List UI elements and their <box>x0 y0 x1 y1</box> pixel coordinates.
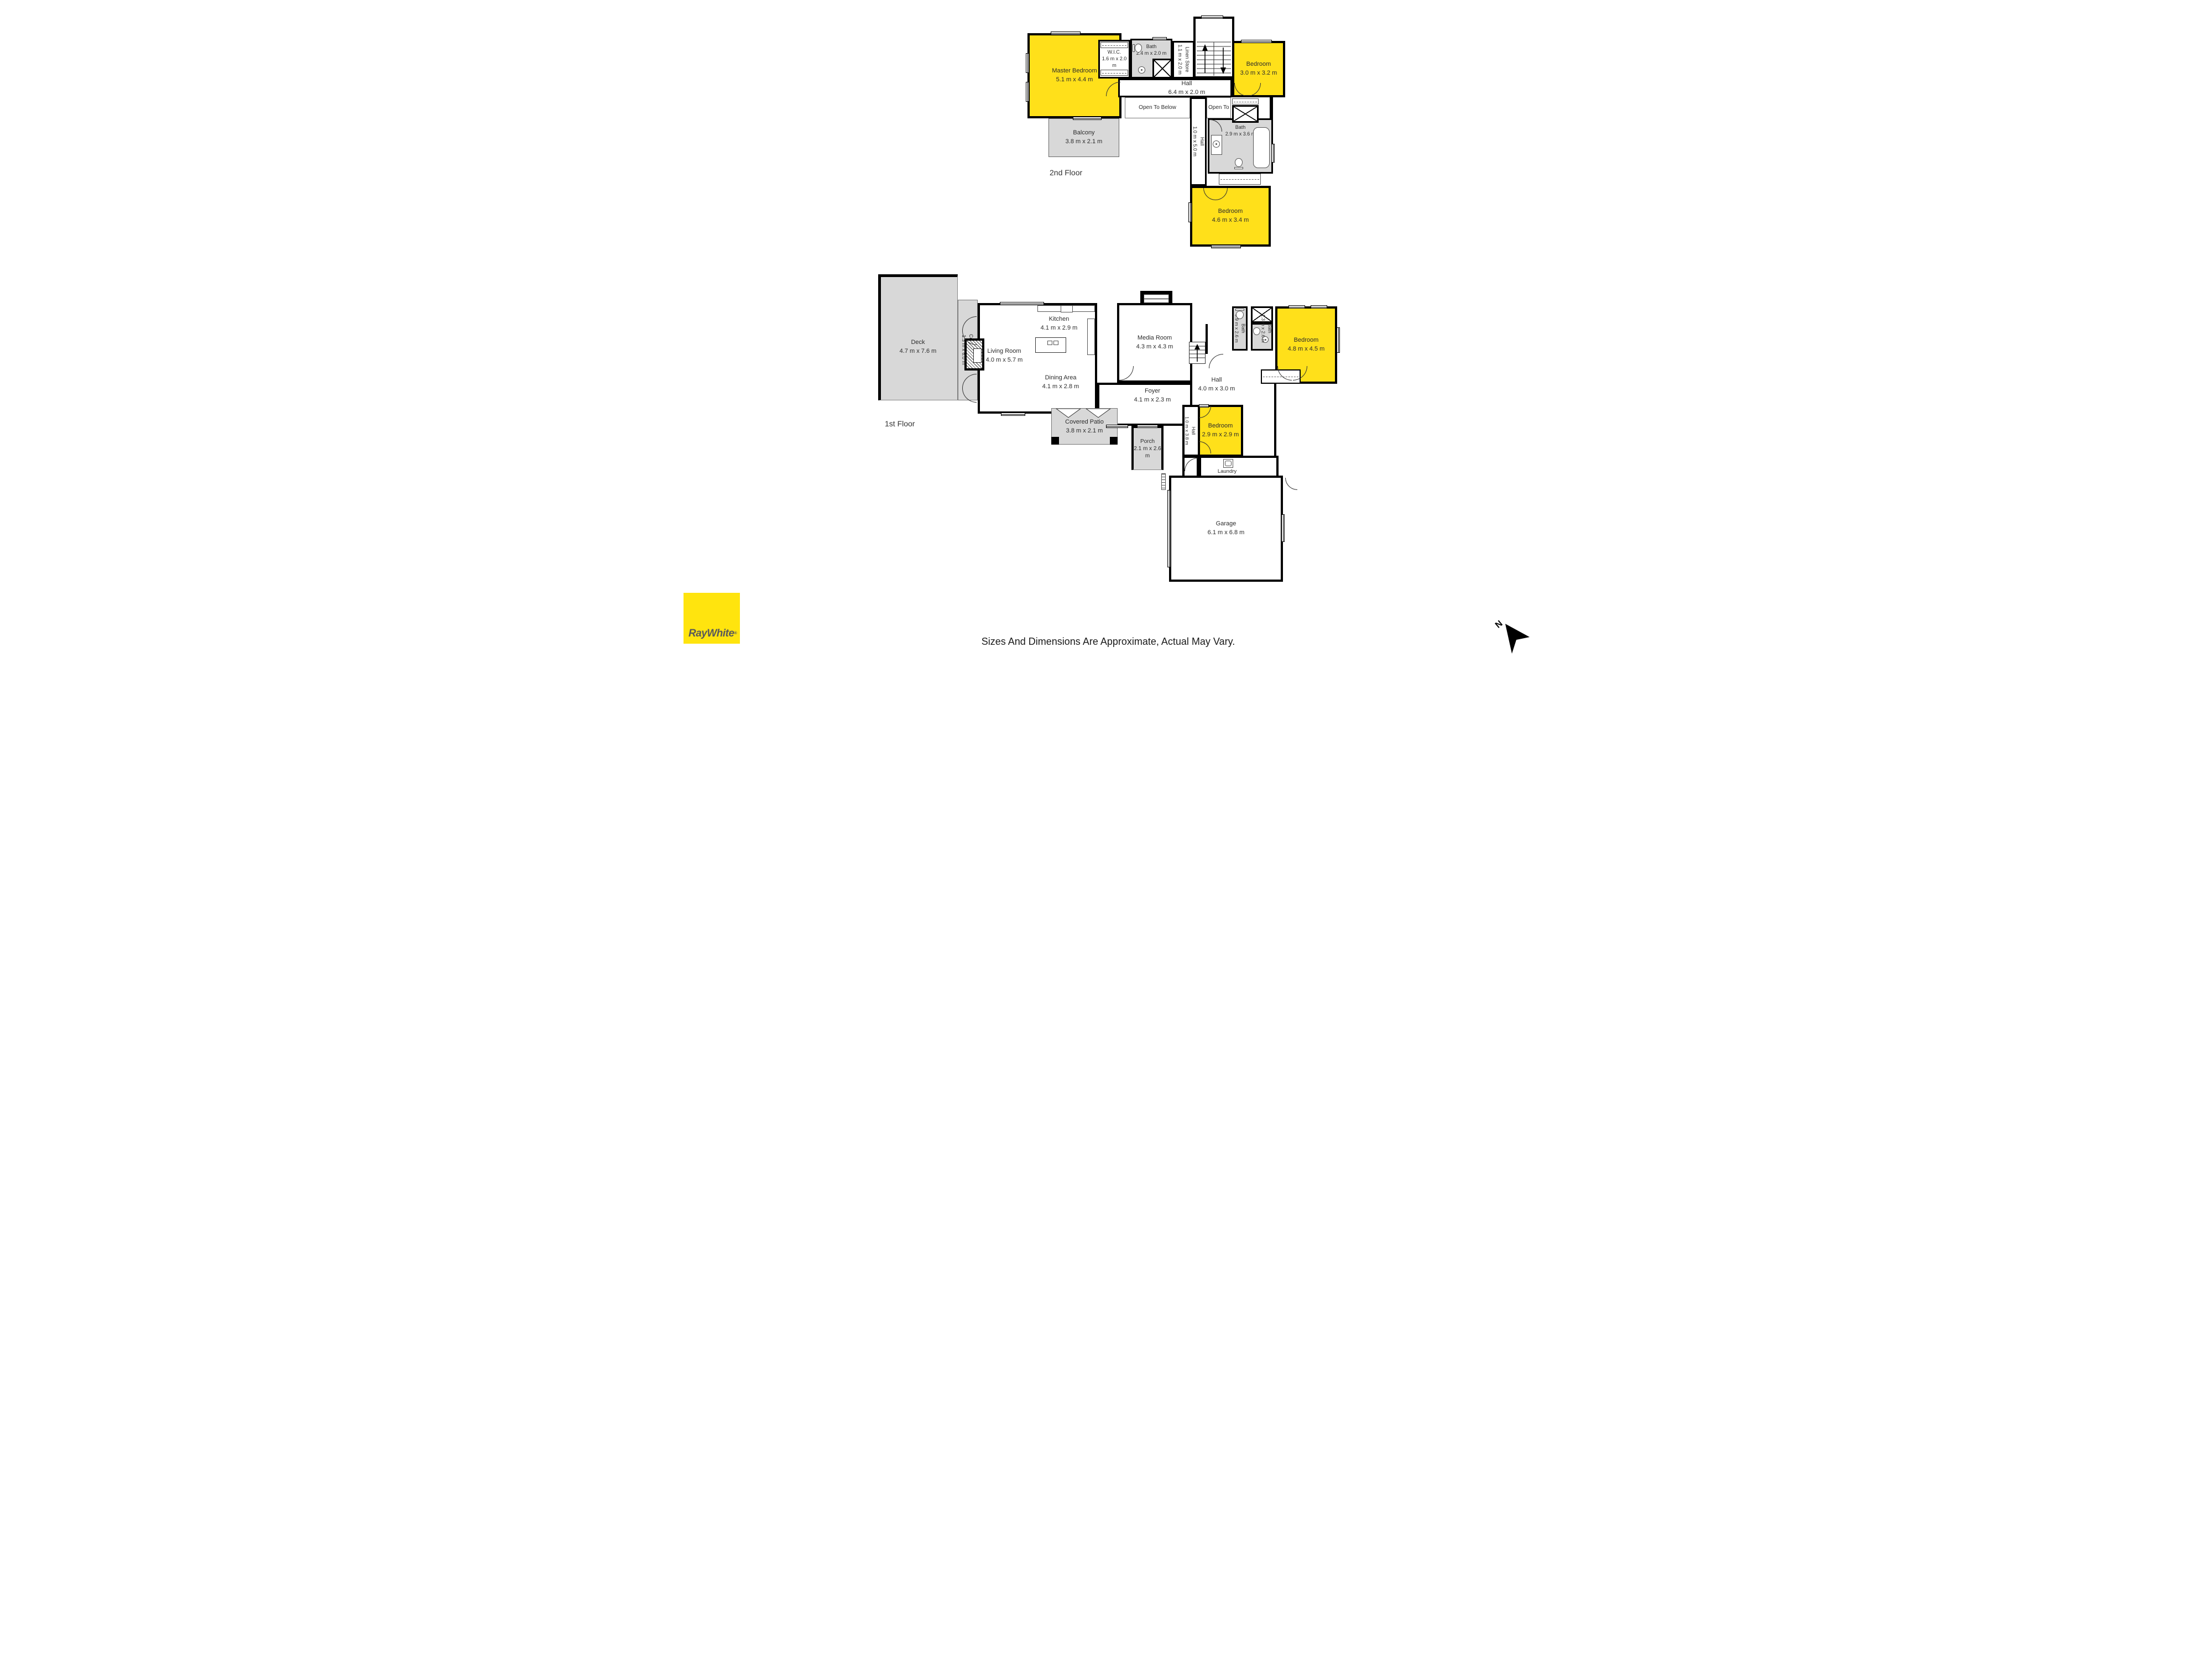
room-label: Garage 6.1 m x 6.8 m <box>1171 478 1281 580</box>
raywhite-logo: RayWhite® <box>684 593 740 644</box>
shower-icon <box>1152 59 1172 79</box>
raywhite-logo-text: RayWhite® <box>688 628 737 640</box>
window-icon <box>1201 15 1223 19</box>
stairs-icon <box>1196 19 1232 76</box>
registered-mark: ® <box>734 632 737 635</box>
room-hall-2f <box>1118 79 1232 97</box>
north-arrow-icon: N <box>1491 614 1535 658</box>
room-porch: Porch 2.1 m x 2.6 m <box>1131 426 1164 470</box>
kitchen-island-icon <box>1035 337 1066 353</box>
wall-segment <box>1270 97 1273 119</box>
compass-label: N <box>1494 619 1505 630</box>
garage-door-icon <box>1167 490 1171 567</box>
window-icon <box>1026 53 1029 73</box>
stairs-icon <box>1189 342 1206 364</box>
window-icon <box>1001 413 1025 416</box>
door-arc-icon <box>962 388 977 403</box>
room-bath-ensuite <box>1251 323 1273 351</box>
window-icon <box>1288 305 1305 309</box>
sink-icon <box>1047 341 1052 345</box>
cooktop-icon <box>1061 305 1073 312</box>
wall-segment <box>1274 383 1276 457</box>
window-icon <box>1137 425 1158 428</box>
room-hall-2f-vertical: Hall 1.0 m x 5.0 m <box>1190 97 1207 186</box>
sink-icon <box>1262 336 1269 343</box>
room-open-plan-living <box>978 303 1097 414</box>
steps-icon <box>1161 473 1166 490</box>
closet-icon <box>1219 174 1261 185</box>
room-laundry <box>1199 456 1279 478</box>
bathtub-icon <box>1253 127 1270 168</box>
room-label: Porch 2.1 m x 2.6 m <box>1134 428 1161 469</box>
patio-post <box>1051 437 1059 445</box>
window-icon <box>1051 32 1081 35</box>
room-label: Hall 1.0 m x 5.0 m <box>1192 99 1205 184</box>
window-icon <box>1026 82 1029 102</box>
window-icon <box>1281 514 1285 542</box>
room-linen-store: Linen Store 1.1 m x 2.0 m <box>1172 41 1194 79</box>
window-icon <box>1211 245 1241 248</box>
sink-icon <box>1138 66 1145 74</box>
window-icon <box>1271 144 1275 163</box>
closet-icon <box>1100 42 1128 48</box>
staircase-lower <box>1189 342 1206 364</box>
room-dims: 5.1 m x 4.4 m <box>1056 76 1093 85</box>
open-to-below-left: Open To Below <box>1125 97 1190 118</box>
staircase-upper <box>1193 17 1234 79</box>
window-icon <box>1152 37 1167 40</box>
room-name: Master Bedroom <box>1052 67 1097 76</box>
room-bedroom-s-2f: Bedroom 4.6 m x 3.4 m <box>1190 186 1271 247</box>
room-deck <box>878 274 958 400</box>
window-icon <box>1337 327 1340 353</box>
room-label: Linen Store 1.1 m x 2.0 m <box>1174 43 1193 77</box>
window-icon <box>1188 202 1192 222</box>
room-label: Balcony 3.8 m x 2.1 m <box>1049 119 1119 156</box>
closet-icon <box>1100 70 1128 76</box>
room-garage: Garage 6.1 m x 6.8 m <box>1169 476 1283 582</box>
window-icon <box>1000 302 1044 305</box>
window-icon <box>1311 305 1327 309</box>
bay-window-icon <box>1144 294 1169 303</box>
closet-icon <box>1232 98 1259 105</box>
sink-icon <box>1213 140 1220 148</box>
window-icon <box>1106 425 1128 428</box>
wall-segment <box>1206 324 1208 354</box>
room-label: Bedroom 4.6 m x 3.4 m <box>1192 188 1269 244</box>
floor-label-1st: 1st Floor <box>885 419 915 428</box>
disclaimer-text: Sizes And Dimensions Are Approximate, Ac… <box>940 636 1276 648</box>
laundry-sink-icon <box>1225 461 1232 466</box>
open-doors-icon <box>1052 409 1117 420</box>
floor-label-2nd: 2nd Floor <box>1050 168 1082 177</box>
sink-icon <box>1053 341 1058 345</box>
kitchen-counter-icon <box>1087 319 1095 355</box>
window-icon <box>1241 40 1272 43</box>
open-to-below-right: Open To Below <box>1207 97 1231 118</box>
shower-icon <box>1232 105 1259 123</box>
shower-icon <box>1251 306 1273 323</box>
floor-plan-canvas: Master Bedroom 5.1 m x 4.4 m Balcony 3.8… <box>664 0 1548 664</box>
door-arc-icon <box>1285 478 1297 490</box>
toilet-icon <box>1234 167 1243 169</box>
sliding-door-icon <box>1073 117 1102 120</box>
room-balcony: Balcony 3.8 m x 2.1 m <box>1048 118 1119 157</box>
patio-post <box>1110 437 1118 445</box>
